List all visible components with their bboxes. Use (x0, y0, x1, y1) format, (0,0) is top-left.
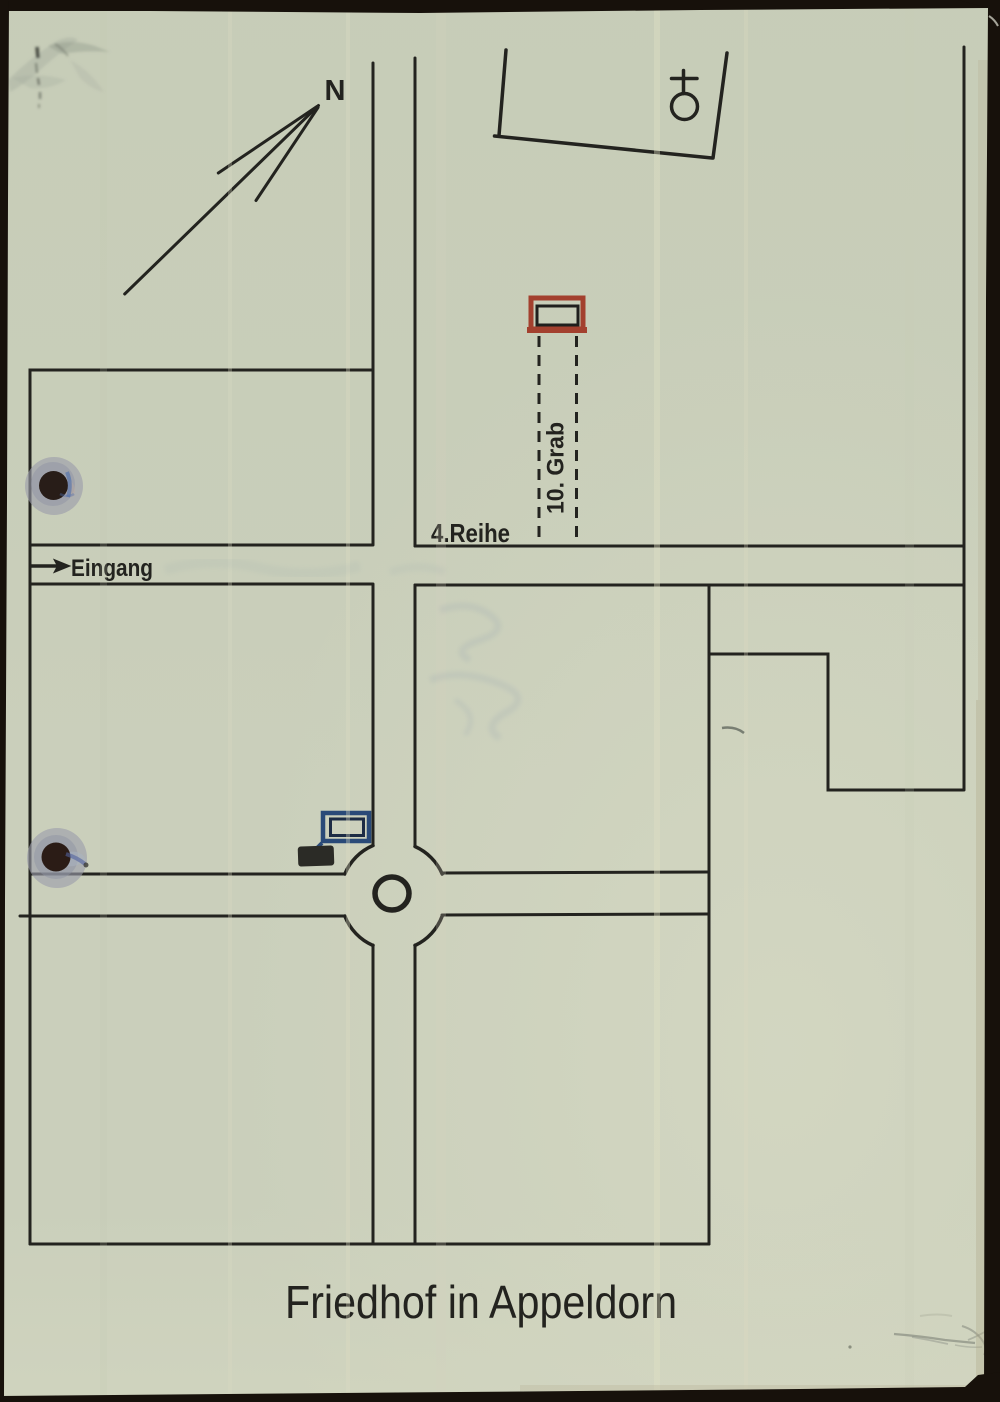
svg-text:Eingang: Eingang (71, 555, 153, 582)
svg-text:N: N (325, 75, 346, 107)
svg-text:Friedhof in Appeldorn: Friedhof in Appeldorn (285, 1276, 677, 1328)
svg-text:10. Grab: 10. Grab (543, 422, 570, 514)
